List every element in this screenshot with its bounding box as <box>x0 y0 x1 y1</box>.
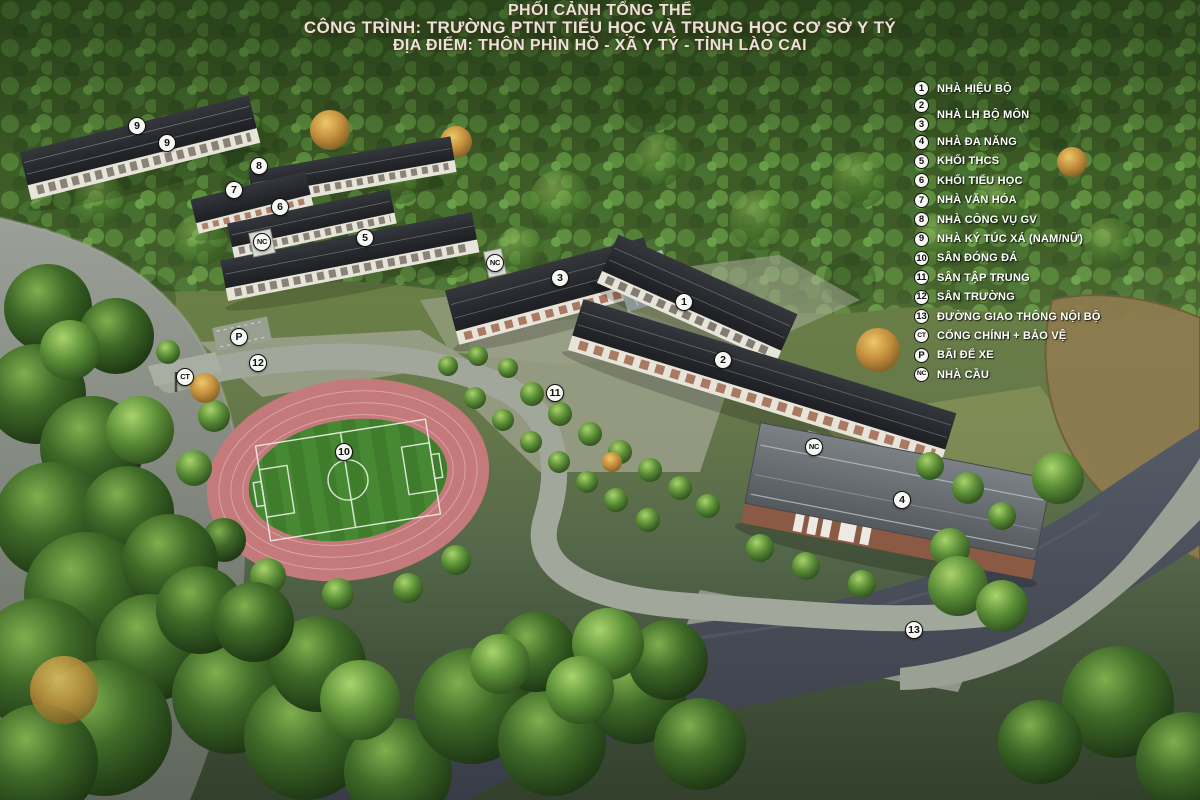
legend-item: 8NHÀ CÔNG VỤ GV <box>914 210 1200 229</box>
legend-label: KHỐI TIỂU HỌC <box>937 175 1023 187</box>
map-marker-9: 9 <box>128 117 146 135</box>
legend-badge-2: 2 <box>914 98 929 113</box>
map-marker-CT: CT <box>176 368 194 386</box>
legend-label: NHÀ VĂN HÓA <box>937 194 1017 206</box>
map-marker-4: 4 <box>893 491 911 509</box>
legend-item: PBÃI ĐỂ XE <box>914 346 1200 365</box>
legend-item: 1NHÀ HIỆU BỘ <box>914 79 1200 98</box>
title-line-2: CÔNG TRÌNH: TRƯỜNG PTNT TIỂU HỌC VÀ TRUN… <box>0 19 1200 37</box>
legend: 1NHÀ HIỆU BỘ23NHÀ LH BỘ MÔN4NHÀ ĐA NĂNG5… <box>914 79 1200 384</box>
legend-badge-13: 13 <box>914 309 929 324</box>
map-marker-P: P <box>230 328 248 346</box>
map-marker-7: 7 <box>225 181 243 199</box>
map-marker-2: 2 <box>714 351 732 369</box>
legend-item: 12SÂN TRƯỜNG <box>914 288 1200 307</box>
legend-badge-5: 5 <box>914 154 929 169</box>
legend-item: 9NHÀ KÝ TÚC XÁ (NAM/NỮ) <box>914 229 1200 248</box>
legend-label: NHÀ CÔNG VỤ GV <box>937 214 1037 226</box>
legend-label: SÂN TRƯỜNG <box>937 291 1015 303</box>
legend-item: NCNHÀ CẦU <box>914 365 1200 384</box>
legend-badge-12: 12 <box>914 290 929 305</box>
map-marker-NC: NC <box>253 233 271 251</box>
legend-item: 6KHỐI TIỂU HỌC <box>914 171 1200 190</box>
title-line-3: ĐỊA ĐIỂM: THÔN PHÌN HỒ - XÃ Y TÝ - TỈNH … <box>0 37 1200 54</box>
legend-label: NHÀ HIỆU BỘ <box>937 83 1012 95</box>
legend-badge-3: 3 <box>914 117 929 132</box>
legend-label: SÂN TẬP TRUNG <box>937 272 1030 284</box>
legend-badge-8: 8 <box>914 212 929 227</box>
map-marker-13: 13 <box>905 621 923 639</box>
title-line-1: PHỐI CẢNH TỔNG THỂ <box>0 2 1200 19</box>
legend-label: BÃI ĐỂ XE <box>937 349 994 361</box>
map-marker-10: 10 <box>335 443 353 461</box>
legend-badge-4: 4 <box>914 135 929 150</box>
map-marker-1: 1 <box>675 293 693 311</box>
map-marker-11: 11 <box>546 384 564 402</box>
map-marker-8: 8 <box>250 157 268 175</box>
map-marker-6: 6 <box>271 198 289 216</box>
legend-label: SÂN ĐÓNG ĐÁ <box>937 252 1017 264</box>
map-marker-NC: NC <box>805 438 823 456</box>
map-marker-NC: NC <box>486 254 504 272</box>
legend-badge-9: 9 <box>914 232 929 247</box>
legend-badge-6: 6 <box>914 173 929 188</box>
map-marker-3: 3 <box>551 269 569 287</box>
legend-item: 7NHÀ VĂN HÓA <box>914 191 1200 210</box>
legend-item: 4NHÀ ĐA NĂNG <box>914 132 1200 151</box>
title-block: PHỐI CẢNH TỔNG THỂ CÔNG TRÌNH: TRƯỜNG PT… <box>0 2 1200 54</box>
map-marker-12: 12 <box>249 354 267 372</box>
map-marker-5: 5 <box>356 229 374 247</box>
legend-item: 5KHỐI THCS <box>914 152 1200 171</box>
legend-item: CTCỔNG CHÍNH + BẢO VỆ <box>914 326 1200 345</box>
legend-badge-10: 10 <box>914 251 929 266</box>
legend-badge-1: 1 <box>914 81 929 96</box>
legend-badge-11: 11 <box>914 270 929 285</box>
legend-item: 23NHÀ LH BỘ MÔN <box>914 98 1200 132</box>
site-plan-rendering: 99876NC5NC312P12CT1110NC413 PHỐI CẢNH TỔ… <box>0 0 1200 800</box>
legend-badge-CT: CT <box>914 328 929 343</box>
legend-item: 10SÂN ĐÓNG ĐÁ <box>914 249 1200 268</box>
legend-badge-NC: NC <box>914 367 929 382</box>
legend-badge-P: P <box>914 348 929 363</box>
legend-item: 13ĐƯỜNG GIAO THÔNG NỘI BỘ <box>914 307 1200 326</box>
legend-label: NHÀ KÝ TÚC XÁ (NAM/NỮ) <box>937 233 1083 245</box>
legend-item: 11SÂN TẬP TRUNG <box>914 268 1200 287</box>
legend-label: ĐƯỜNG GIAO THÔNG NỘI BỘ <box>937 311 1101 323</box>
map-marker-9: 9 <box>158 134 176 152</box>
legend-badge-7: 7 <box>914 193 929 208</box>
legend-label: CỔNG CHÍNH + BẢO VỆ <box>937 330 1066 342</box>
legend-label: NHÀ CẦU <box>937 369 989 381</box>
legend-label: KHỐI THCS <box>937 155 999 167</box>
legend-label: NHÀ ĐA NĂNG <box>937 136 1017 148</box>
legend-label: NHÀ LH BỘ MÔN <box>937 109 1029 121</box>
